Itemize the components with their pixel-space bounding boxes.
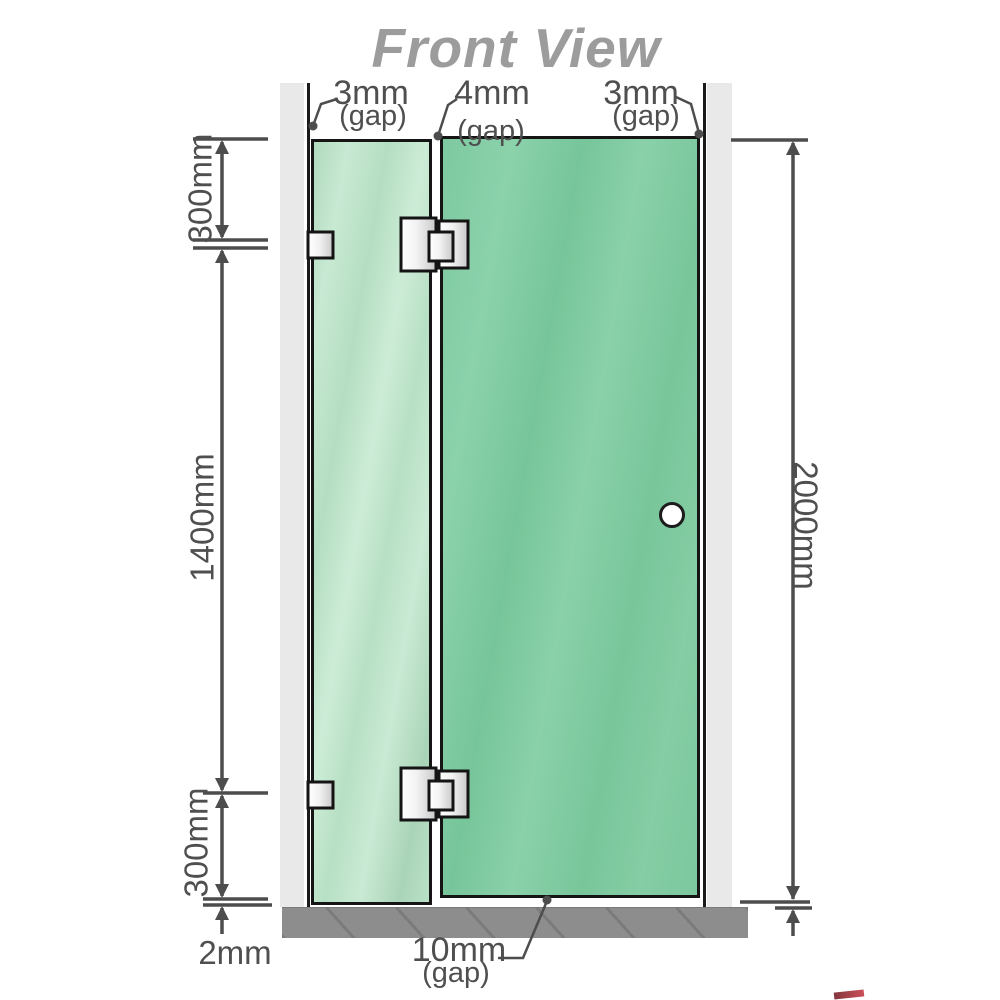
dimension-top-section: 300mm [184,119,217,259]
dimension-total-height: 2000mm [790,456,823,596]
left-wall-edge-line [307,83,310,907]
gap-left-note: (gap) [331,102,415,131]
right-wall [707,83,732,907]
door-knob [659,502,685,528]
red-watermark-fragment [834,989,865,999]
diagram-title: Front View [266,16,766,80]
dimension-bottom-section: 300mm [180,773,213,913]
shower-screen-front-view-diagram: Front View [0,0,1000,1000]
dimension-middle-section: 1400mm [186,448,219,588]
fixed-glass-panel [311,139,432,905]
right-wall-edge-line [703,83,706,907]
left-wall [280,83,304,907]
gap-panel-note: (gap) [449,117,533,146]
gap-panel-value: 4mm [452,76,532,110]
gap-door-bottom-note: (gap) [396,959,516,988]
dimension-floor-clearance: 2mm [175,936,295,969]
gap-right-note: (gap) [604,102,688,131]
